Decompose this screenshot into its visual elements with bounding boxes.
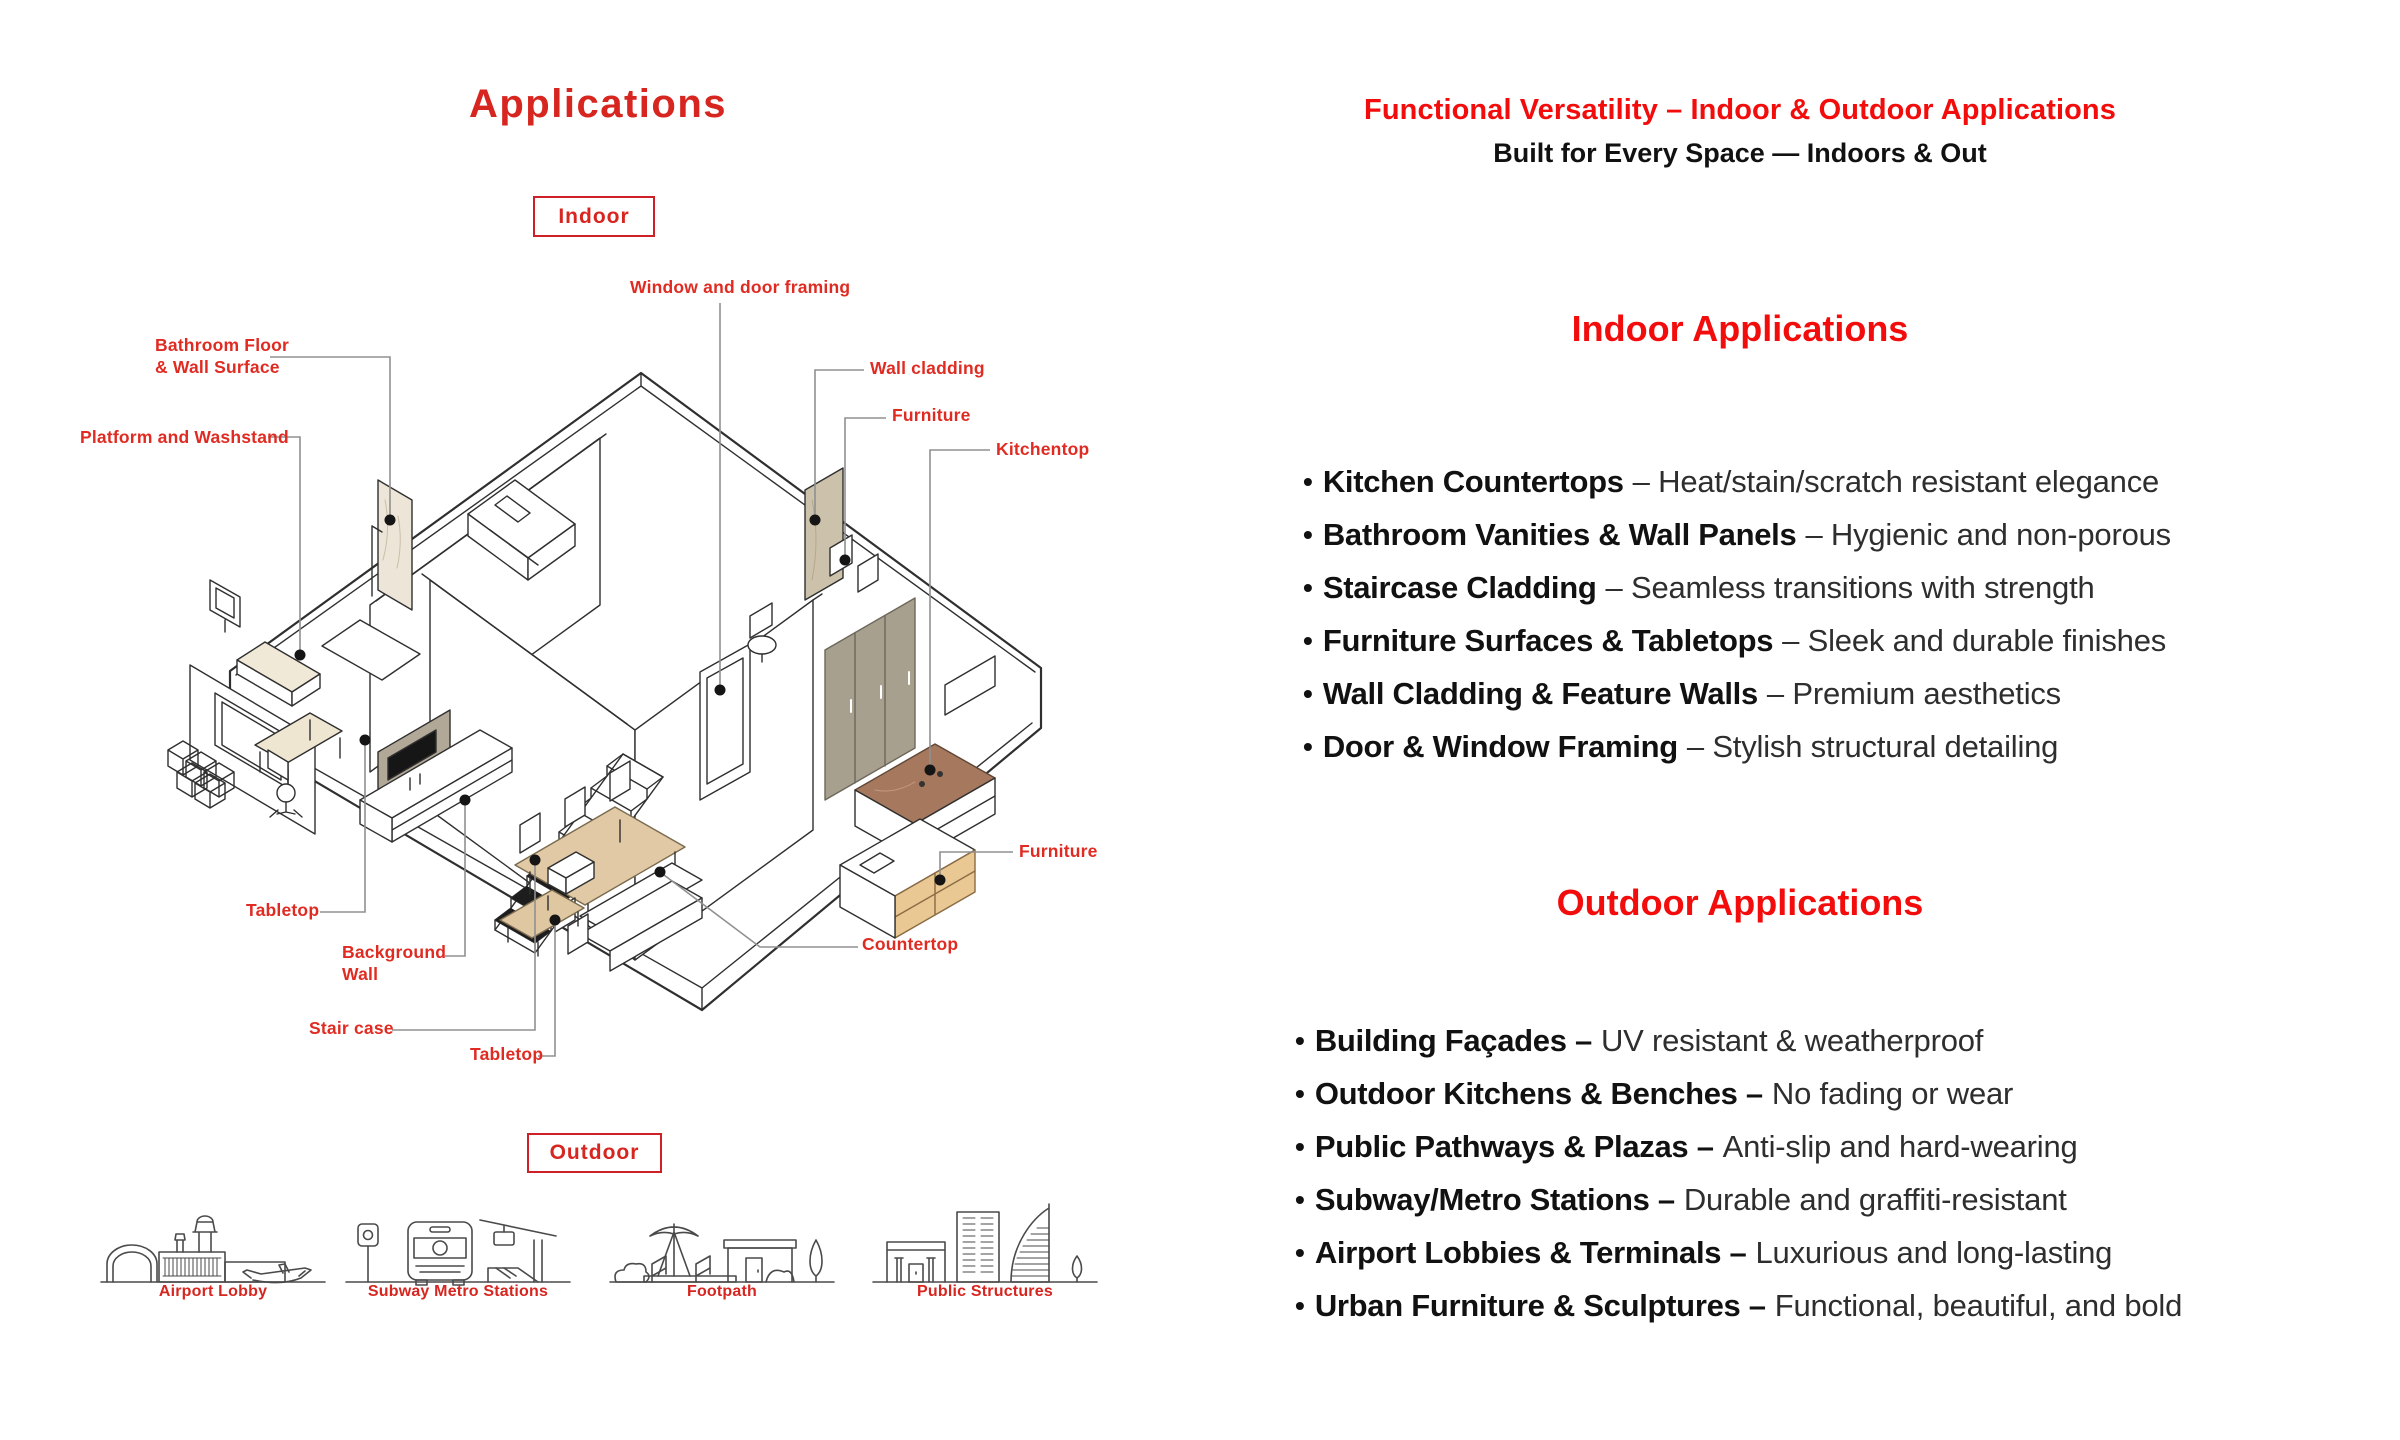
- bullet-glyph: •: [1303, 466, 1313, 498]
- label-background-wall: Background Wall: [342, 941, 446, 985]
- list-item: •Bathroom Vanities & Wall Panels– Hygien…: [1303, 508, 2171, 561]
- right-header-black: Built for Every Space — Indoors & Out: [1240, 138, 2240, 169]
- wall-cladding-panel: [805, 468, 843, 600]
- bullet-glyph: •: [1303, 572, 1313, 604]
- label-bathroom-floor: Bathroom Floor & Wall Surface: [155, 334, 289, 378]
- bullet-glyph: •: [1295, 1078, 1305, 1110]
- indoor-applications-heading: Indoor Applications: [1240, 308, 2240, 350]
- list-item: •Furniture Surfaces & Tabletops– Sleek a…: [1303, 614, 2171, 667]
- bullet-glyph: •: [1303, 519, 1313, 551]
- bullet-glyph: •: [1295, 1025, 1305, 1057]
- isometric-house-diagram: [0, 0, 1200, 1250]
- label-window-door-framing: Window and door framing: [630, 276, 850, 298]
- list-item: •Public Pathways & Plazas –Anti-slip and…: [1295, 1120, 2182, 1173]
- icon-caption-public: Public Structures: [865, 1283, 1105, 1301]
- list-item: •Urban Furniture & Sculptures –Functiona…: [1295, 1279, 2182, 1332]
- list-item: •Outdoor Kitchens & Benches –No fading o…: [1295, 1067, 2182, 1120]
- indoor-applications-list: •Kitchen Countertops– Heat/stain/scratch…: [1303, 455, 2171, 773]
- bullet-glyph: •: [1303, 678, 1313, 710]
- label-tabletop-bottom: Tabletop: [470, 1043, 543, 1065]
- bullet-glyph: •: [1295, 1131, 1305, 1163]
- label-platform-washstand: Platform and Washstand: [80, 426, 289, 448]
- label-wall-cladding: Wall cladding: [870, 357, 985, 379]
- label-countertop: Countertop: [862, 933, 958, 955]
- list-item: •Subway/Metro Stations –Durable and graf…: [1295, 1173, 2182, 1226]
- bullet-glyph: •: [1303, 731, 1313, 763]
- outdoor-applications-heading: Outdoor Applications: [1240, 882, 2240, 924]
- label-furniture-right: Furniture: [1019, 840, 1098, 862]
- list-item: •Wall Cladding & Feature Walls– Premium …: [1303, 667, 2171, 720]
- list-item: •Building Façades –UV resistant & weathe…: [1295, 1014, 2182, 1067]
- list-item: •Staircase Cladding– Seamless transition…: [1303, 561, 2171, 614]
- right-header-red: Functional Versatility – Indoor & Outdoo…: [1240, 94, 2240, 127]
- list-item: •Door & Window Framing– Stylish structur…: [1303, 720, 2171, 773]
- bullet-glyph: •: [1295, 1237, 1305, 1269]
- list-item: •Airport Lobbies & Terminals –Luxurious …: [1295, 1226, 2182, 1279]
- bullet-glyph: •: [1295, 1184, 1305, 1216]
- bullet-glyph: •: [1303, 625, 1313, 657]
- bullet-glyph: •: [1295, 1290, 1305, 1322]
- list-item: •Kitchen Countertops– Heat/stain/scratch…: [1303, 455, 2171, 508]
- icon-caption-footpath: Footpath: [602, 1283, 842, 1301]
- label-furniture-top: Furniture: [892, 404, 971, 426]
- label-staircase: Stair case: [309, 1017, 394, 1039]
- icon-caption-airport: Airport Lobby: [93, 1283, 333, 1301]
- label-tabletop-left: Tabletop: [246, 899, 319, 921]
- label-kitchentop: Kitchentop: [996, 438, 1089, 460]
- outdoor-applications-list: •Building Façades –UV resistant & weathe…: [1295, 1014, 2182, 1332]
- icon-caption-subway: Subway Metro Stations: [338, 1283, 578, 1301]
